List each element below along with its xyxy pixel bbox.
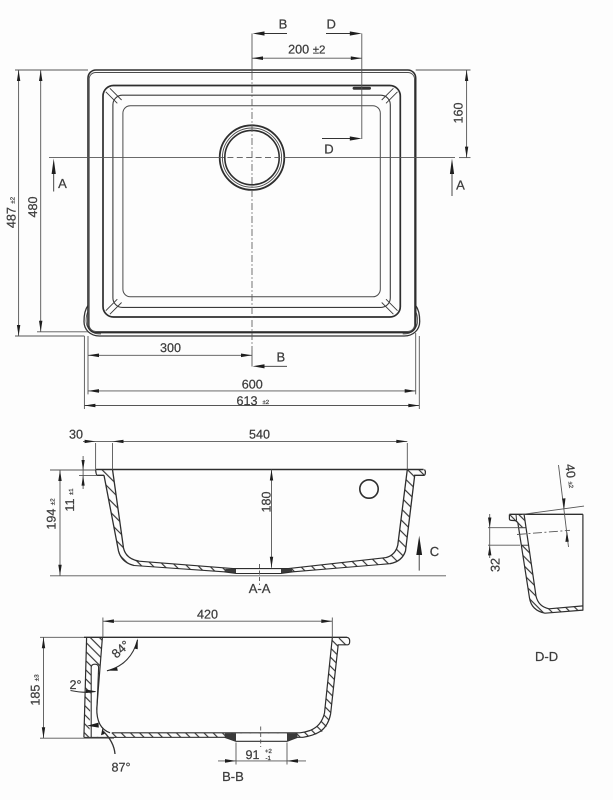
svg-text:A-A: A-A — [249, 581, 271, 596]
svg-text:D: D — [327, 16, 336, 31]
svg-text:480: 480 — [26, 196, 40, 217]
svg-text:487 ±2: 487 ±2 — [5, 196, 19, 228]
svg-text:11 ±1: 11 ±1 — [63, 488, 77, 512]
svg-text:C: C — [430, 544, 439, 559]
svg-text:91: 91 — [245, 748, 259, 762]
svg-text:185 ±3: 185 ±3 — [29, 674, 43, 706]
svg-text:D-D: D-D — [535, 649, 558, 664]
svg-text:30: 30 — [69, 428, 83, 442]
svg-text:87°: 87° — [111, 761, 130, 775]
svg-text:32: 32 — [489, 558, 503, 572]
svg-text:180: 180 — [259, 491, 273, 512]
svg-text:A: A — [58, 176, 67, 191]
svg-text:D: D — [324, 142, 333, 157]
svg-text:40 ±2: 40 ±2 — [562, 463, 579, 489]
svg-text:A: A — [456, 178, 465, 193]
svg-text:300: 300 — [160, 341, 181, 355]
svg-text:200 ±2: 200 ±2 — [288, 43, 325, 57]
svg-text:420: 420 — [197, 608, 218, 622]
svg-text:-1: -1 — [266, 755, 272, 762]
svg-text:600: 600 — [242, 377, 263, 391]
svg-text:2°: 2° — [69, 678, 81, 692]
svg-text:±2: ±2 — [263, 399, 270, 406]
svg-text:160: 160 — [451, 102, 465, 123]
svg-text:B: B — [276, 350, 285, 365]
svg-text:+2: +2 — [265, 748, 273, 755]
svg-text:B: B — [279, 16, 288, 31]
svg-text:540: 540 — [249, 427, 270, 441]
svg-text:613: 613 — [236, 394, 257, 408]
svg-text:194 ±2: 194 ±2 — [45, 498, 59, 530]
svg-text:B-B: B-B — [222, 769, 244, 784]
